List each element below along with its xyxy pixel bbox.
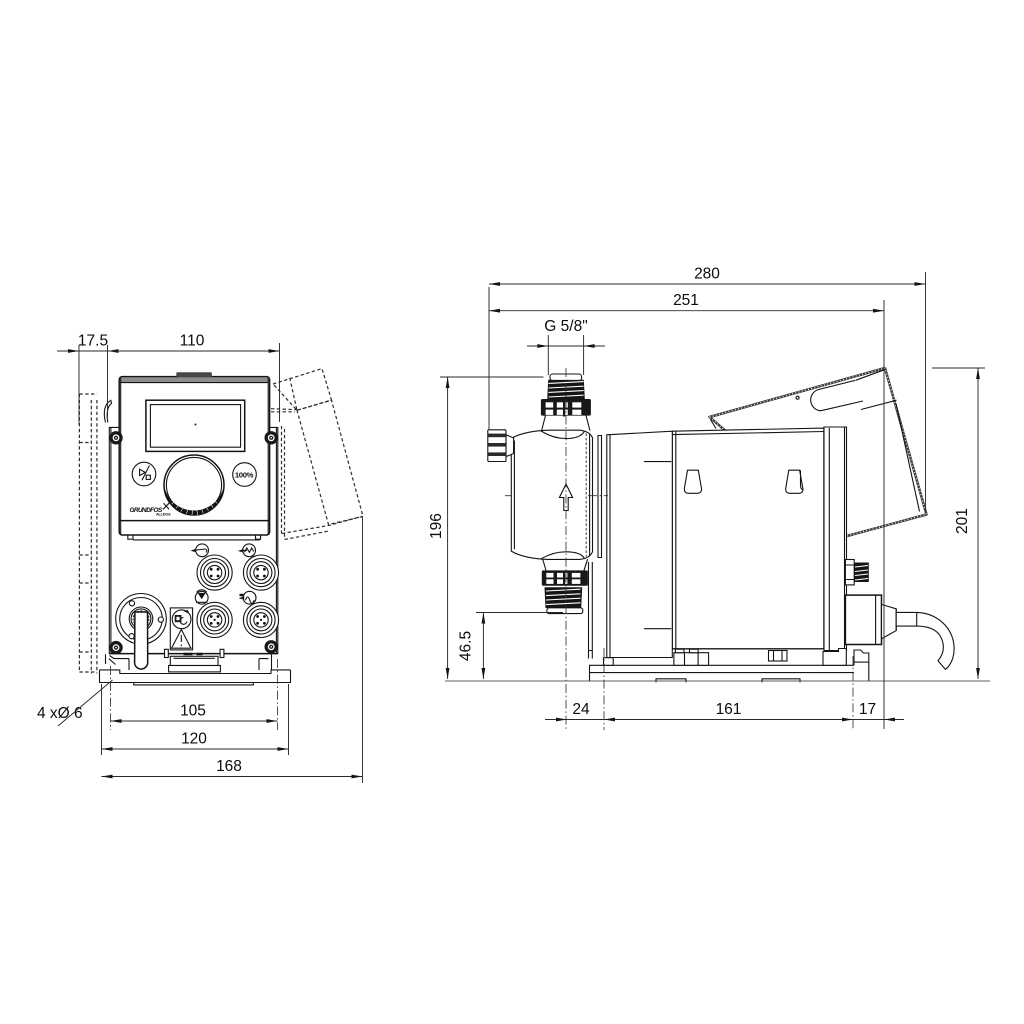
svg-text:251: 251: [673, 292, 699, 309]
svg-text:46.5: 46.5: [458, 631, 475, 661]
svg-text:110: 110: [180, 333, 205, 350]
svg-text:196: 196: [428, 513, 445, 539]
svg-text:G 5/8": G 5/8": [544, 318, 587, 335]
svg-text:201: 201: [954, 508, 971, 534]
svg-text:4 xØ 6: 4 xØ 6: [37, 705, 83, 722]
svg-text:24: 24: [572, 701, 590, 718]
svg-text:105: 105: [180, 703, 206, 720]
svg-text:161: 161: [716, 701, 742, 718]
svg-text:280: 280: [694, 266, 720, 283]
svg-text:ALLDOS: ALLDOS: [156, 512, 171, 516]
svg-text:17.5: 17.5: [78, 333, 108, 350]
svg-text:120: 120: [181, 731, 207, 748]
svg-text:100%: 100%: [235, 471, 254, 480]
svg-text:168: 168: [216, 758, 242, 775]
svg-text:17: 17: [859, 701, 876, 718]
